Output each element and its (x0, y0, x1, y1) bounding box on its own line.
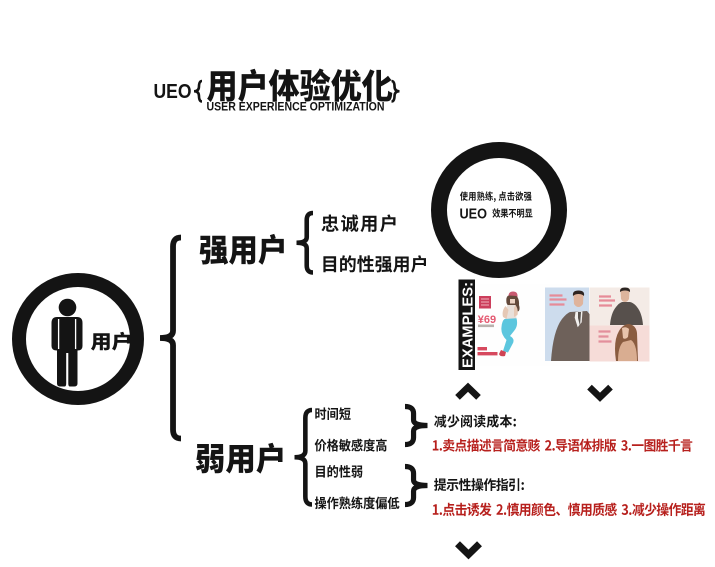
svg-text:EXAMPLES:: EXAMPLES: (459, 282, 476, 368)
svg-text:¥69: ¥69 (478, 314, 496, 326)
svg-text:UEO: UEO (154, 81, 192, 103)
svg-text:USER EXPERIENCE OPTIMIZATION: USER EXPERIENCE OPTIMIZATION (207, 100, 385, 113)
svg-text:UEO: UEO (460, 205, 488, 222)
